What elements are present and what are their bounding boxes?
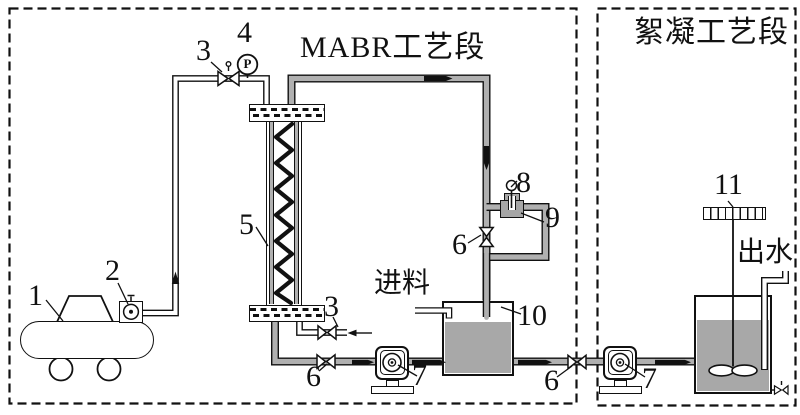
process-flow-diagram: MABR工艺段 絮凝工艺段 进料 出水 P 1 2 3 4 5 3 6 7 8 … [0, 0, 800, 415]
feed-inlet-pipe [415, 311, 449, 319]
membrane-spiral [276, 124, 292, 303]
label-air-flow-gauge: 2 [105, 256, 120, 286]
label-column-drain-valve: 6 [306, 362, 321, 392]
bottom-arrow-4 [655, 360, 691, 365]
bottom-arrow-1 [352, 360, 374, 365]
recirculation-pump-dial [383, 354, 401, 372]
feed-label: 进料 [374, 270, 430, 298]
label-sensor-probe: 8 [516, 168, 531, 198]
label-air-compressor: 1 [28, 281, 43, 311]
label-transfer-valve: 6 [544, 366, 559, 396]
label-feed-tank: 10 [517, 301, 547, 331]
air-inlet-valve [218, 62, 239, 86]
impeller [709, 365, 757, 376]
tank-drain-valve [771, 381, 788, 394]
top-right-arrow [424, 76, 453, 81]
label-flow-cell: 9 [545, 203, 560, 233]
sensor-probe [507, 181, 517, 209]
loop-valve [480, 228, 493, 247]
mabr-section-title: MABR工艺段 [300, 33, 485, 63]
exhaust-outlet-arrow [348, 330, 373, 337]
label-air-inlet-valve: 3 [196, 36, 211, 66]
exhaust-valve [318, 326, 336, 339]
label-membrane-column: 5 [239, 210, 254, 240]
transfer-pump-dial [611, 354, 629, 372]
effluent-pipe [765, 271, 786, 370]
effluent-label: 出水 [737, 239, 793, 267]
label-stirrer-motor: 11 [714, 170, 743, 200]
label-recirculation-pump: 7 [412, 361, 427, 391]
downcomer-arrow [484, 146, 489, 170]
pressure-gauge-letter: P [240, 57, 255, 70]
label-exhaust-valve: 3 [324, 292, 339, 322]
label-pressure-gauge: 4 [237, 18, 252, 48]
label-transfer-pump: 7 [642, 364, 657, 394]
flocculation-section-title: 絮凝工艺段 [634, 18, 789, 48]
riser-up-arrow [172, 272, 179, 285]
leader-lines [46, 62, 733, 377]
label-loop-valve: 6 [452, 230, 467, 260]
